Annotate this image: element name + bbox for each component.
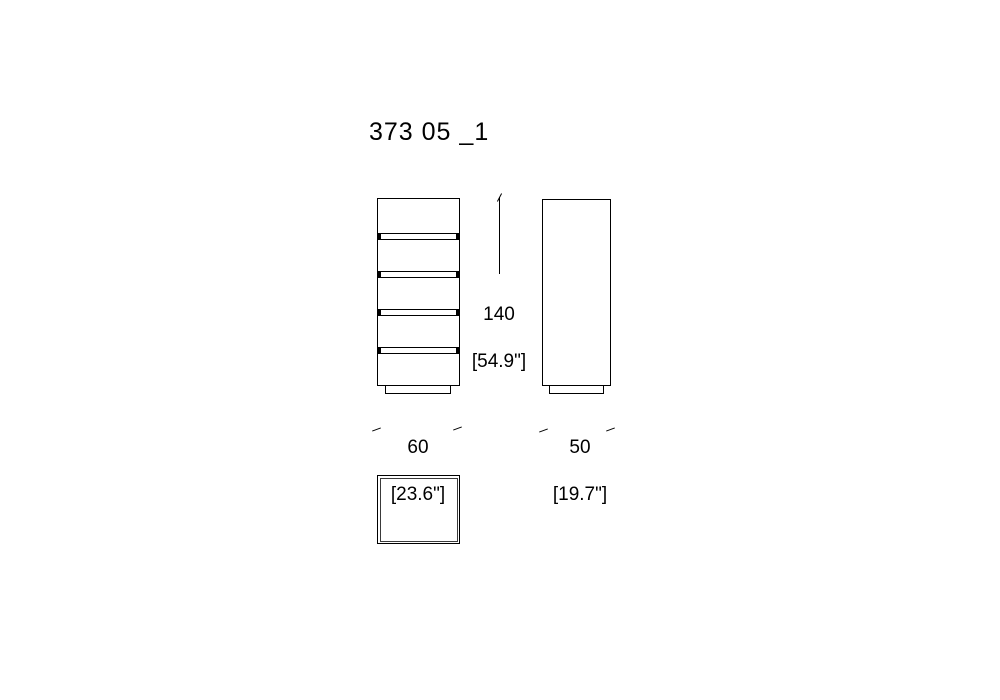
height-imperial: [54.9"] (461, 354, 537, 370)
width-value: 60 (368, 440, 468, 456)
drawing-canvas: 373 05 _1 140 [54.9"] 60 [23.6"] 50 [19.… (0, 0, 1000, 700)
drawing-title: 373 05 _1 (369, 118, 489, 147)
drawer-divider (378, 347, 459, 354)
drawer-divider (378, 309, 459, 316)
width-dimension-label: 60 [23.6"] (368, 409, 468, 533)
drawer-divider (378, 271, 459, 278)
depth-value: 50 (530, 440, 630, 456)
width-imperial: [23.6"] (368, 487, 468, 503)
side-view-plinth (549, 386, 604, 394)
front-view-plinth (385, 386, 451, 394)
drawer-divider (378, 233, 459, 240)
front-view (377, 198, 460, 386)
depth-dimension-label: 50 [19.7"] (530, 409, 630, 533)
depth-imperial: [19.7"] (530, 487, 630, 503)
side-view (542, 199, 611, 386)
height-value: 140 (461, 307, 537, 323)
height-dimension-label: 140 [54.9"] (461, 274, 537, 405)
